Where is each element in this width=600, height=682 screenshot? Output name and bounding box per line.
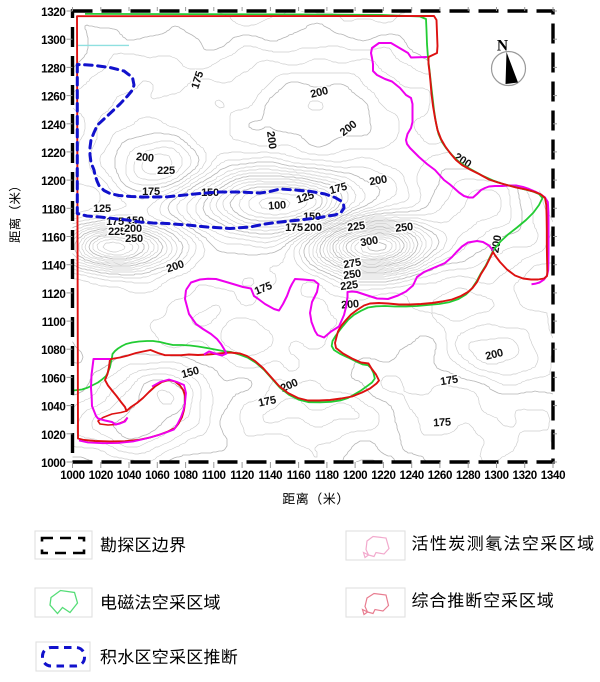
svg-text:1240: 1240 xyxy=(399,469,423,482)
svg-text:1060: 1060 xyxy=(145,469,169,482)
svg-text:1000: 1000 xyxy=(60,469,84,482)
svg-text:1080: 1080 xyxy=(41,344,65,357)
svg-text:1160: 1160 xyxy=(42,232,66,245)
svg-text:1220: 1220 xyxy=(41,147,65,160)
svg-text:1320: 1320 xyxy=(41,6,65,19)
svg-text:1300: 1300 xyxy=(41,34,65,47)
svg-text:200: 200 xyxy=(135,151,154,165)
svg-text:1120: 1120 xyxy=(42,288,66,301)
svg-text:1120: 1120 xyxy=(230,469,254,482)
svg-text:1020: 1020 xyxy=(41,429,65,442)
svg-text:1160: 1160 xyxy=(287,469,311,482)
svg-text:1040: 1040 xyxy=(117,469,141,482)
svg-text:175: 175 xyxy=(433,416,451,429)
svg-text:1280: 1280 xyxy=(41,62,65,75)
svg-text:1200: 1200 xyxy=(343,469,367,482)
svg-text:N: N xyxy=(497,38,508,55)
svg-text:1100: 1100 xyxy=(42,316,66,329)
svg-text:1020: 1020 xyxy=(89,469,113,482)
svg-text:1080: 1080 xyxy=(173,469,197,482)
svg-text:1200: 1200 xyxy=(41,175,65,188)
svg-text:1240: 1240 xyxy=(41,119,65,132)
svg-text:100: 100 xyxy=(268,199,287,212)
svg-text:1300: 1300 xyxy=(484,469,508,482)
svg-text:1140: 1140 xyxy=(259,469,283,482)
svg-text:1320: 1320 xyxy=(512,469,536,482)
svg-text:1100: 1100 xyxy=(202,469,226,482)
svg-text:1260: 1260 xyxy=(41,91,65,104)
svg-text:1260: 1260 xyxy=(428,469,452,482)
svg-text:1040: 1040 xyxy=(41,401,65,414)
svg-text:225: 225 xyxy=(157,165,175,177)
svg-text:250: 250 xyxy=(395,221,414,235)
svg-text:1060: 1060 xyxy=(41,372,65,385)
svg-text:1140: 1140 xyxy=(42,260,66,273)
svg-text:1220: 1220 xyxy=(371,469,395,482)
svg-text:225: 225 xyxy=(346,220,365,234)
svg-text:175: 175 xyxy=(285,222,303,234)
svg-text:1180: 1180 xyxy=(315,469,339,482)
svg-text:1180: 1180 xyxy=(42,203,66,216)
svg-text:1340: 1340 xyxy=(541,469,565,482)
svg-text:250: 250 xyxy=(125,233,143,245)
svg-text:200: 200 xyxy=(264,131,278,150)
svg-text:1280: 1280 xyxy=(456,469,480,482)
svg-text:200: 200 xyxy=(304,222,322,234)
svg-text:125: 125 xyxy=(93,203,111,215)
